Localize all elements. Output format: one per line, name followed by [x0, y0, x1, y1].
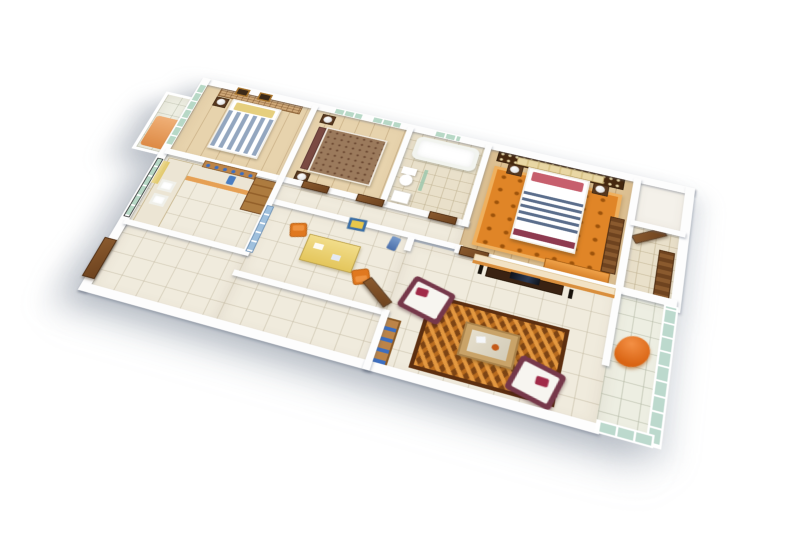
floorplan-render-canvas: [0, 0, 800, 550]
paper: [476, 336, 486, 343]
table-setting: [313, 243, 324, 251]
striped-duvet: [517, 188, 584, 234]
dining-chair: [289, 223, 307, 237]
apartment-3d-model: [38, 76, 689, 478]
coffee-table-glass: [466, 329, 511, 361]
table-setting: [331, 254, 342, 262]
